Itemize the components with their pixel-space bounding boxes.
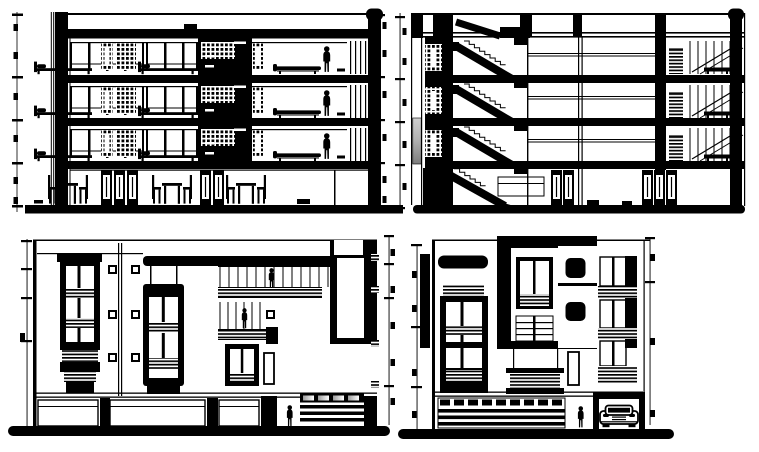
partition-panel — [114, 170, 125, 205]
partition-panel — [551, 170, 562, 205]
architectural-drawing — [0, 0, 759, 452]
partition-panel — [101, 170, 112, 205]
storefront — [8, 393, 390, 437]
person-figure — [287, 405, 293, 426]
car-figure — [600, 406, 638, 428]
section-structure — [423, 9, 745, 208]
table-chairs-icon — [226, 175, 266, 204]
dimension-line-left — [12, 12, 54, 212]
small-window — [108, 353, 117, 362]
small-window — [131, 353, 140, 362]
partition-panel — [563, 170, 574, 205]
cross-section-view — [12, 9, 403, 214]
partition-panel — [642, 170, 653, 205]
person-figure — [269, 268, 274, 288]
partition-panel — [666, 170, 677, 205]
front-elevation-view — [8, 235, 395, 436]
garage-door — [300, 405, 364, 422]
highlighted-wall-panel — [413, 118, 421, 164]
person-figure — [578, 406, 584, 427]
partition-panel — [654, 170, 665, 205]
stair-section-view — [375, 9, 745, 214]
dimension-line-left — [20, 239, 32, 430]
side-elevation-view — [398, 236, 674, 439]
small-window — [108, 265, 117, 274]
small-window — [266, 310, 275, 319]
small-window — [131, 310, 140, 319]
small-window — [131, 265, 140, 274]
dimension-lines — [375, 13, 407, 211]
partition-panel — [200, 170, 211, 205]
partition-panel — [127, 170, 138, 205]
drawing-sheet — [0, 0, 759, 452]
sign-band — [438, 256, 488, 269]
gate-and-garage — [398, 392, 674, 440]
small-window — [108, 310, 117, 319]
partition-panel — [213, 170, 224, 205]
ground-floor-dining — [34, 170, 368, 206]
table-chairs-icon — [152, 175, 192, 204]
